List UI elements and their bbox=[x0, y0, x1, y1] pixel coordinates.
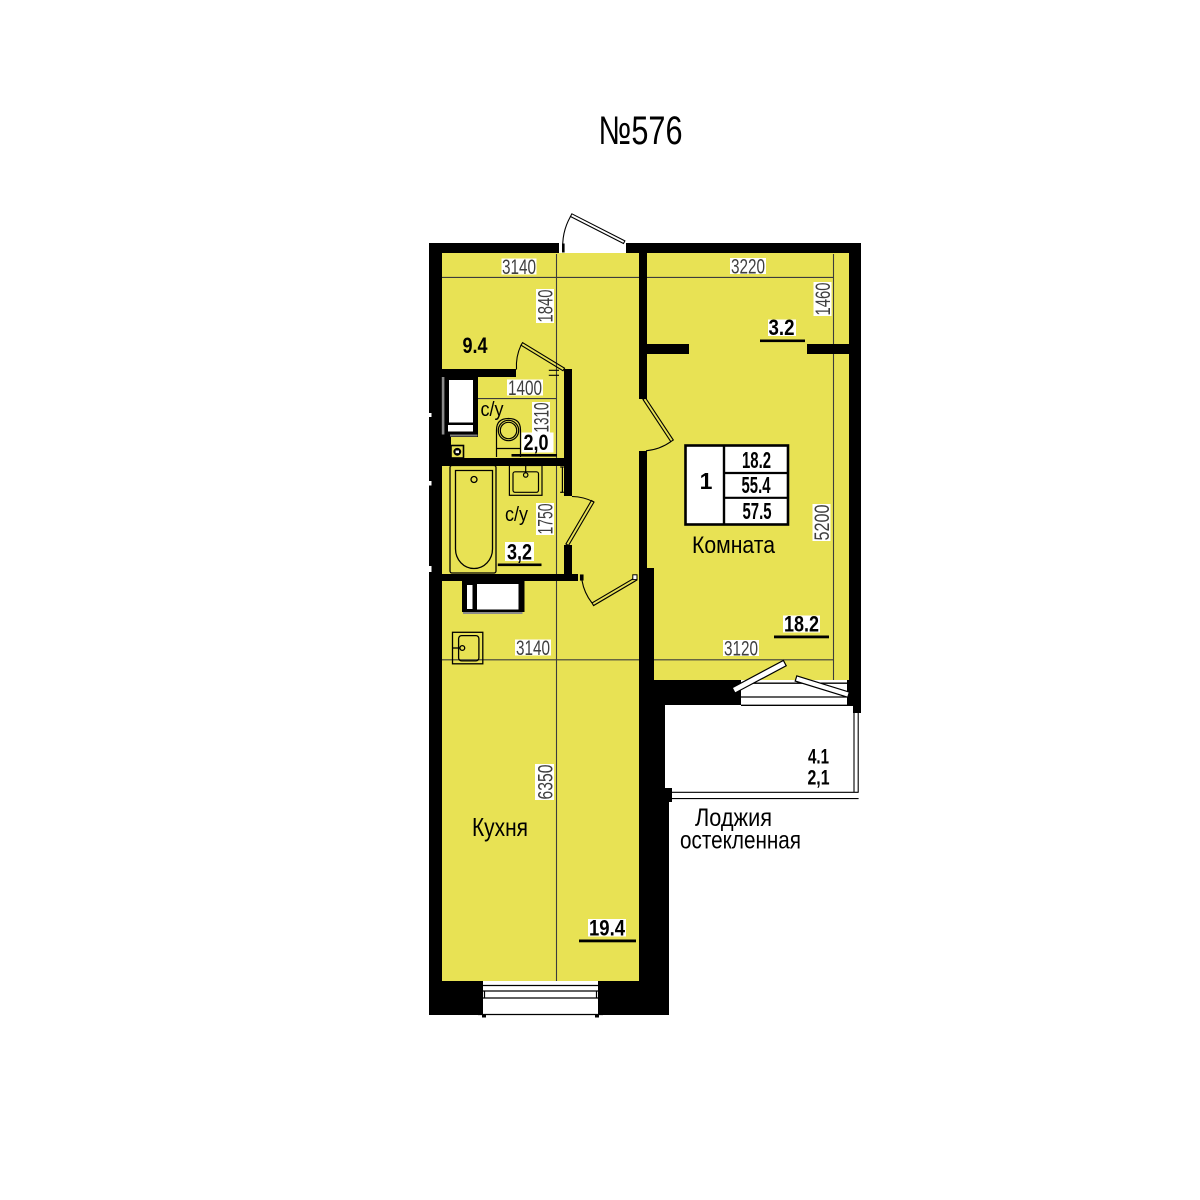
svg-text:18.2: 18.2 bbox=[742, 447, 771, 473]
svg-text:1840: 1840 bbox=[535, 290, 558, 323]
svg-text:3.2: 3.2 bbox=[769, 315, 795, 340]
svg-text:6350: 6350 bbox=[535, 765, 558, 800]
svg-text:57.5: 57.5 bbox=[743, 498, 772, 524]
svg-text:4.1: 4.1 bbox=[808, 746, 829, 769]
svg-text:5200: 5200 bbox=[811, 505, 834, 541]
svg-text:№576: №576 bbox=[599, 109, 683, 153]
svg-text:1400: 1400 bbox=[508, 377, 542, 400]
svg-text:18.2: 18.2 bbox=[784, 612, 819, 637]
svg-text:2,0: 2,0 bbox=[524, 430, 549, 455]
svg-text:остекленная: остекленная bbox=[680, 827, 801, 855]
svg-text:с/у: с/у bbox=[481, 399, 504, 421]
svg-text:3140: 3140 bbox=[516, 637, 550, 660]
svg-text:1750: 1750 bbox=[535, 504, 558, 535]
svg-text:3,2: 3,2 bbox=[507, 540, 532, 565]
svg-text:2,1: 2,1 bbox=[808, 767, 830, 790]
svg-text:3120: 3120 bbox=[724, 638, 758, 661]
svg-text:19.4: 19.4 bbox=[589, 916, 626, 941]
svg-text:1310: 1310 bbox=[531, 403, 554, 433]
svg-text:Комната: Комната bbox=[692, 532, 776, 559]
svg-text:55.4: 55.4 bbox=[742, 472, 771, 498]
svg-text:1: 1 bbox=[700, 468, 713, 494]
svg-text:1460: 1460 bbox=[812, 283, 835, 316]
svg-text:3220: 3220 bbox=[731, 256, 765, 279]
svg-text:9.4: 9.4 bbox=[463, 333, 489, 358]
svg-text:Кухня: Кухня bbox=[472, 812, 528, 842]
svg-text:с/у: с/у bbox=[505, 504, 528, 526]
svg-text:3140: 3140 bbox=[502, 256, 536, 279]
